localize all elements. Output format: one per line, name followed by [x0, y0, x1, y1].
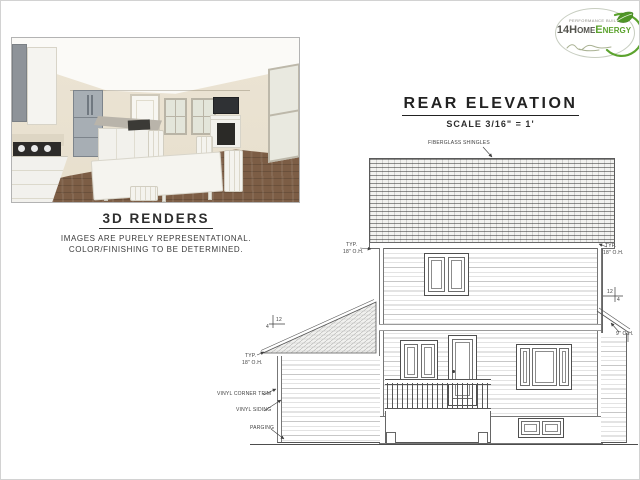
label-pitch-run: 12	[276, 317, 282, 323]
label-siding: VINYL SIDING	[236, 407, 271, 413]
dining-chair	[148, 130, 164, 158]
logo-artwork	[549, 3, 639, 61]
elevation-heading: REAR ELEVATION SCALE 3/16" = 1'	[393, 95, 588, 129]
porch-roof	[263, 302, 376, 353]
label-typ: TYP.	[245, 353, 256, 359]
label-pitch-rise: 4	[617, 297, 620, 303]
back-window-left	[164, 98, 187, 135]
upper-cabinet	[27, 47, 57, 125]
drawing-sheet: 3D RENDERS IMAGES ARE PURELY REPRESENTAT…	[0, 0, 640, 480]
right-rake	[597, 311, 628, 332]
label-overhang: 18" O.H.	[242, 360, 263, 366]
label-pitch-rise: 4	[266, 324, 269, 330]
left-wall-panel	[12, 44, 27, 122]
label-shingles: FIBERGLASS SHINGLES	[428, 140, 490, 146]
elevation-scale-note: SCALE 3/16" = 1'	[393, 119, 588, 129]
dining-chair	[130, 186, 158, 201]
tv	[213, 97, 239, 114]
label-typ: TYP.	[346, 242, 357, 248]
label-corner-trim: VINYL CORNER TRIM	[217, 391, 271, 397]
signature-scribble	[567, 45, 611, 51]
elevation-title: REAR ELEVATION	[402, 95, 580, 116]
cooktop	[13, 142, 61, 156]
renders-title: 3D RENDERS	[99, 211, 212, 229]
elevation-linework	[211, 131, 640, 451]
island-sink	[128, 119, 150, 130]
company-logo: PERFORMANCE BUILT 14HomeEnergy	[549, 3, 639, 61]
label-overhang-9: 9" O.H.	[616, 331, 634, 337]
label-overhang: 18" O.H.	[603, 250, 624, 256]
label-parging: PARGING	[250, 425, 274, 431]
label-overhang: 18" O.H.	[343, 249, 364, 255]
label-pitch-run: 12	[607, 289, 613, 295]
label-typ: TYP.	[605, 243, 616, 249]
